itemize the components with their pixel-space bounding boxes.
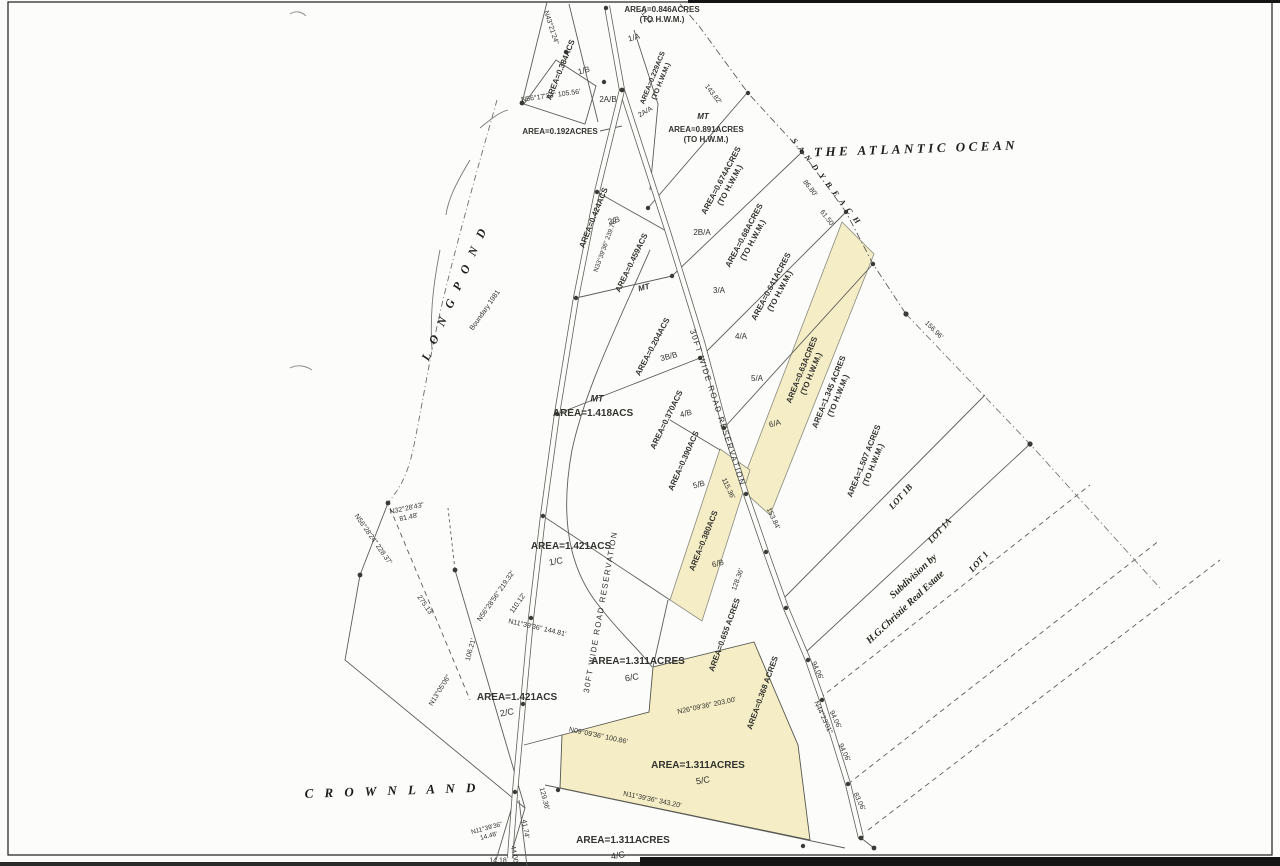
distance-label: 110.12' bbox=[509, 592, 529, 615]
distance-label: 83.06' bbox=[850, 792, 866, 813]
parcel-area: AREA=0.68ACRES (TO H.W.M.) bbox=[724, 202, 775, 274]
bearing-label: N11°39'36" 144.81' bbox=[507, 618, 567, 640]
parcel-id: 4/B bbox=[679, 408, 693, 421]
parcel-id: MT bbox=[697, 112, 709, 122]
road-a-label: 30FT WIDE ROAD RESERVATION bbox=[687, 328, 747, 487]
parcel-id: MT bbox=[591, 393, 604, 404]
bearing-label: N13°05'06" bbox=[428, 674, 454, 708]
parcel-id: 6/C bbox=[624, 671, 640, 685]
bearing-label: N11°39'36" 343.20' bbox=[622, 791, 682, 812]
bearing-label: N11°39'36" 14.48' bbox=[470, 821, 505, 845]
distance-label: 153.84' bbox=[763, 507, 781, 531]
parcel-area: AREA=1.311ACRES bbox=[576, 835, 670, 848]
bearing-label: N33°39'36" 239.76' bbox=[593, 219, 620, 274]
bearing-label: N26°09'36" 203.00' bbox=[677, 697, 737, 718]
distance-label: 41.74' bbox=[518, 819, 530, 839]
distance-label: 115.36' bbox=[718, 477, 735, 501]
boundary-note: Boundary 1981 bbox=[469, 289, 503, 333]
parcel-id: 2/C bbox=[499, 706, 515, 720]
parcel-id: 5/A bbox=[751, 374, 763, 384]
parcel-area: AREA=0.891ACRES (TO H.W.M.) bbox=[668, 125, 743, 145]
parcel-id: 1/C bbox=[548, 555, 564, 569]
parcel-id: 5/B bbox=[692, 479, 706, 492]
parcel-area: AREA=0.641ACRES (TO H.W.M.) bbox=[749, 251, 802, 327]
parcel-area: AREA=0.204ACS bbox=[634, 316, 673, 377]
parcel-area: AREA=0.192ACRES bbox=[522, 127, 597, 137]
parcel-area: AREA=0.846ACRES (TO H.W.M.) bbox=[624, 5, 699, 25]
distance-label: 129.36' bbox=[536, 787, 550, 811]
lot-label: LOT 1 bbox=[967, 549, 992, 575]
lot-label: LOT 1B bbox=[887, 482, 916, 512]
bearing-label: N09°09'36" 100.86' bbox=[568, 727, 628, 748]
parcel-area: AREA=0.368 ACRES bbox=[745, 655, 781, 731]
distance-label: 86.80' bbox=[800, 179, 819, 199]
parcel-id: 5/C bbox=[695, 774, 711, 788]
distance-label: 94.06' bbox=[808, 661, 824, 682]
bearing-label: N43°21'24" bbox=[540, 10, 559, 46]
distance-label: 143.82' bbox=[702, 83, 723, 106]
bearing-label: N56°28'24" 228.37' bbox=[351, 513, 392, 567]
label-layer: THE ATLANTIC OCEANS A N D Y B E A C HL O… bbox=[0, 0, 1280, 866]
parcel-area: AREA=1.421ACS bbox=[477, 692, 557, 705]
parcel-area: AREA=1.421ACS bbox=[531, 541, 611, 554]
parcel-id: 4/C bbox=[610, 849, 626, 863]
parcel-area: AREA=0.229ACS (TO H.W.M.) bbox=[639, 51, 676, 110]
parcel-id: 2A/A bbox=[637, 105, 655, 120]
parcel-area: AREA=0.655 ACRES bbox=[707, 597, 743, 673]
parcel-id: 6/B bbox=[711, 558, 725, 571]
parcel-id: 3B/B bbox=[659, 350, 678, 364]
distance-label: 275.13' bbox=[414, 594, 434, 618]
parcel-area: AREA=1.418ACS bbox=[553, 408, 633, 421]
lot-label: LOT 1A bbox=[926, 516, 955, 546]
crown-land-label: C R O W N L A N D bbox=[304, 780, 479, 802]
parcel-id: 6/A bbox=[768, 418, 782, 431]
distance-label: 156.96' bbox=[922, 320, 944, 342]
distance-label: 61.50' bbox=[817, 209, 836, 229]
parcel-id: 4/A bbox=[735, 332, 747, 342]
distance-label: 94.06' bbox=[835, 743, 851, 764]
parcel-id: 3/A bbox=[713, 286, 725, 296]
distance-label: 106.21' bbox=[465, 638, 479, 662]
parcel-id: 2A/B bbox=[599, 95, 616, 105]
distance-label: 128.36' bbox=[731, 568, 747, 592]
parcel-area: AREA=1.507 ACRES (TO H.W.M.) bbox=[845, 423, 892, 502]
parcel-id: 2B/A bbox=[693, 228, 710, 238]
parcel-area: AREA=1.311ACRES bbox=[651, 760, 745, 773]
parcel-area: AREA=1.311ACRES bbox=[591, 656, 685, 669]
distance-label: 14.18 bbox=[489, 858, 507, 866]
long-pond-label: L O N G P O N D bbox=[418, 223, 491, 363]
bearing-label: N56°28'56" 219.32' bbox=[476, 570, 517, 624]
parcel-id: 1/A bbox=[627, 32, 641, 45]
parcel-id: 1/B bbox=[577, 65, 591, 78]
parcel-area: AREA=0.370ACS bbox=[648, 389, 685, 451]
road-b-label: 30FT WIDE ROAD RESERVATION bbox=[582, 530, 620, 693]
bearing-label: N32°28'43" 81.48' bbox=[389, 502, 427, 526]
parcel-area: AREA=0.674ACRES (TO H.W.M.) bbox=[699, 145, 752, 221]
scanned-survey-map: THE ATLANTIC OCEANS A N D Y B E A C HL O… bbox=[0, 0, 1280, 866]
ocean-label: THE ATLANTIC OCEAN bbox=[814, 137, 1019, 160]
distance-label: 44.00' bbox=[507, 845, 519, 865]
parcel-id: MT bbox=[637, 282, 651, 295]
